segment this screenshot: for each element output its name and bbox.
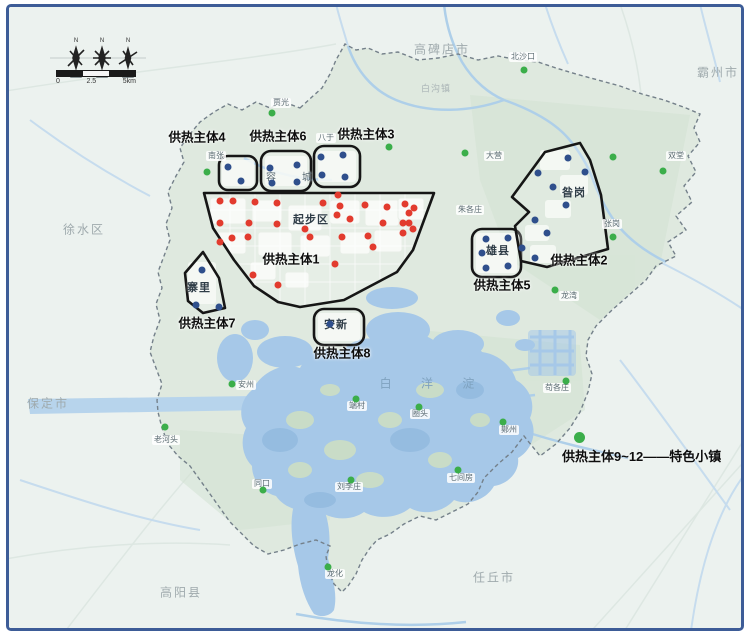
red-dot bbox=[307, 234, 314, 241]
red-dot bbox=[252, 199, 259, 206]
red-dot bbox=[347, 216, 354, 223]
red-dot bbox=[217, 239, 224, 246]
red-dot bbox=[246, 220, 253, 227]
village-label: 大营 bbox=[484, 151, 504, 161]
green-dot bbox=[204, 169, 211, 176]
red-dot bbox=[337, 203, 344, 210]
compass-north-letter: N bbox=[74, 38, 78, 44]
scale-tick-0: 0 bbox=[56, 78, 60, 85]
blue-dot bbox=[582, 169, 589, 176]
red-dot bbox=[245, 234, 252, 241]
red-dot bbox=[229, 235, 236, 242]
city-label: 白沟镇 bbox=[421, 82, 451, 95]
city-label: 高阳县 bbox=[160, 584, 202, 601]
village-label: 龙化 bbox=[325, 569, 345, 579]
blue-dot bbox=[519, 245, 526, 252]
scale-bar-segments bbox=[56, 70, 136, 77]
blue-dot bbox=[535, 170, 542, 177]
area-label: 雄县 bbox=[486, 242, 510, 258]
red-dot bbox=[250, 272, 257, 279]
blue-dot bbox=[479, 250, 486, 257]
red-dot bbox=[275, 282, 282, 289]
blue-dot bbox=[238, 178, 245, 185]
area-label: 昝岗 bbox=[562, 184, 586, 200]
village-label: 端村 bbox=[347, 401, 367, 411]
green-dot bbox=[325, 564, 332, 571]
scale-tick-end: 5km bbox=[123, 78, 136, 85]
green-dot bbox=[610, 154, 617, 161]
scale-segment bbox=[83, 71, 109, 76]
blue-dot bbox=[294, 162, 301, 169]
blue-dot bbox=[483, 236, 490, 243]
blue-dot bbox=[193, 302, 200, 309]
red-dot bbox=[274, 200, 281, 207]
green-dot bbox=[416, 404, 423, 411]
lake-name-label: 白 洋 淀 bbox=[367, 375, 488, 392]
red-dot bbox=[339, 234, 346, 241]
red-dot bbox=[410, 226, 417, 233]
village-label: 苟各庄 bbox=[543, 383, 571, 393]
zone-2-label: 供热主体2 bbox=[551, 250, 608, 269]
scale-segment bbox=[57, 71, 83, 76]
city-label: 徐水区 bbox=[63, 221, 105, 238]
city-label: 高碑店市 bbox=[414, 41, 470, 58]
green-dot bbox=[260, 487, 267, 494]
village-label: 圈头 bbox=[410, 409, 430, 419]
village-label: 鄚州 bbox=[499, 425, 519, 435]
red-dot bbox=[402, 201, 409, 208]
green-dot bbox=[563, 378, 570, 385]
green-dot bbox=[353, 396, 360, 403]
zone-5-label: 供热主体5 bbox=[474, 275, 531, 294]
red-dot bbox=[332, 261, 339, 268]
red-dot bbox=[380, 220, 387, 227]
area-label: 起步区 bbox=[293, 211, 329, 227]
village-label: 老河头 bbox=[152, 435, 180, 445]
village-label: 贾光 bbox=[271, 98, 291, 108]
blue-dot bbox=[532, 217, 539, 224]
red-dot bbox=[335, 192, 342, 199]
green-dot bbox=[552, 287, 559, 294]
red-dot bbox=[400, 230, 407, 237]
city-label: 保定市 bbox=[27, 395, 69, 412]
zone-6-label: 供热主体6 bbox=[250, 126, 307, 145]
scale-tick-mid: 2.5 bbox=[86, 78, 96, 85]
blue-dot bbox=[565, 155, 572, 162]
blue-dot bbox=[225, 164, 232, 171]
red-dot bbox=[230, 198, 237, 205]
blue-dot bbox=[483, 265, 490, 272]
village-label: 龙湾 bbox=[559, 291, 579, 301]
green-dot bbox=[386, 144, 393, 151]
village-label: 朱各庄 bbox=[456, 205, 484, 215]
red-dot bbox=[274, 221, 281, 228]
village-label: 北沙口 bbox=[509, 52, 537, 62]
red-dot bbox=[384, 204, 391, 211]
scale-segment bbox=[109, 71, 135, 76]
blue-dot bbox=[342, 174, 349, 181]
city-label: 霸州市 bbox=[697, 64, 739, 81]
legend: 供热主体9~12——特色小镇 bbox=[562, 432, 744, 465]
blue-dot bbox=[327, 321, 334, 328]
village-label: 南张 bbox=[206, 151, 226, 161]
red-dot bbox=[365, 233, 372, 240]
zone-8-label: 供热主体8 bbox=[314, 343, 371, 362]
green-dot bbox=[455, 467, 462, 474]
village-label: 刘李庄 bbox=[335, 482, 363, 492]
blue-dot bbox=[267, 165, 274, 172]
red-dot bbox=[302, 226, 309, 233]
green-dot bbox=[610, 234, 617, 241]
map-canvas: 供热主体1供热主体2供热主体3供热主体4供热主体5供热主体6供热主体7供热主体8… bbox=[6, 4, 744, 631]
red-dot bbox=[362, 202, 369, 209]
blue-dot bbox=[340, 152, 347, 159]
blue-dot bbox=[294, 179, 301, 186]
scale-bar: 0 2.5 5km bbox=[56, 70, 136, 85]
red-dot bbox=[217, 198, 224, 205]
green-dot bbox=[348, 477, 355, 484]
red-dot bbox=[217, 220, 224, 227]
village-label: 八于 bbox=[316, 133, 336, 143]
blue-dot bbox=[216, 304, 223, 311]
green-dot bbox=[229, 381, 236, 388]
village-label: 双堂 bbox=[666, 151, 686, 161]
village-label: 张岗 bbox=[602, 219, 622, 229]
zone-3-label: 供热主体3 bbox=[338, 124, 395, 143]
area-label: 寨里 bbox=[187, 279, 211, 295]
blue-dot bbox=[505, 263, 512, 270]
blue-dot bbox=[544, 230, 551, 237]
blue-dot bbox=[318, 154, 325, 161]
green-dot bbox=[500, 419, 507, 426]
village-label: 七间房 bbox=[447, 473, 475, 483]
labels-and-markers-layer: 供热主体1供热主体2供热主体3供热主体4供热主体5供热主体6供热主体7供热主体8… bbox=[6, 4, 744, 631]
green-dot bbox=[269, 110, 276, 117]
red-dot bbox=[320, 200, 327, 207]
zone-4-label: 供热主体4 bbox=[169, 127, 226, 146]
figure-page: { "compass": { "north_letter": "N" }, "s… bbox=[0, 0, 750, 638]
red-dot bbox=[334, 212, 341, 219]
legend-label: 供热主体9~12——特色小镇 bbox=[562, 446, 744, 465]
blue-dot bbox=[199, 267, 206, 274]
zone-7-label: 供热主体7 bbox=[179, 313, 236, 332]
compass-north-letter: N bbox=[126, 38, 130, 44]
green-dot bbox=[162, 424, 169, 431]
blue-dot bbox=[505, 235, 512, 242]
blue-dot bbox=[319, 172, 326, 179]
blue-dot bbox=[532, 255, 539, 262]
green-dot bbox=[660, 168, 667, 175]
city-label: 任丘市 bbox=[473, 569, 515, 586]
map-frame: 供热主体1供热主体2供热主体3供热主体4供热主体5供热主体6供热主体7供热主体8… bbox=[6, 4, 744, 631]
green-dot bbox=[462, 150, 469, 157]
legend-green-dot bbox=[574, 432, 585, 443]
blue-dot bbox=[269, 180, 276, 187]
red-dot bbox=[406, 210, 413, 217]
green-dot bbox=[521, 67, 528, 74]
blue-dot bbox=[550, 184, 557, 191]
blue-dot bbox=[563, 202, 570, 209]
red-dot bbox=[370, 244, 377, 251]
village-label: 安州 bbox=[236, 380, 256, 390]
zone-1-label: 供热主体1 bbox=[263, 249, 320, 268]
compass-north-letter: N bbox=[100, 38, 104, 44]
